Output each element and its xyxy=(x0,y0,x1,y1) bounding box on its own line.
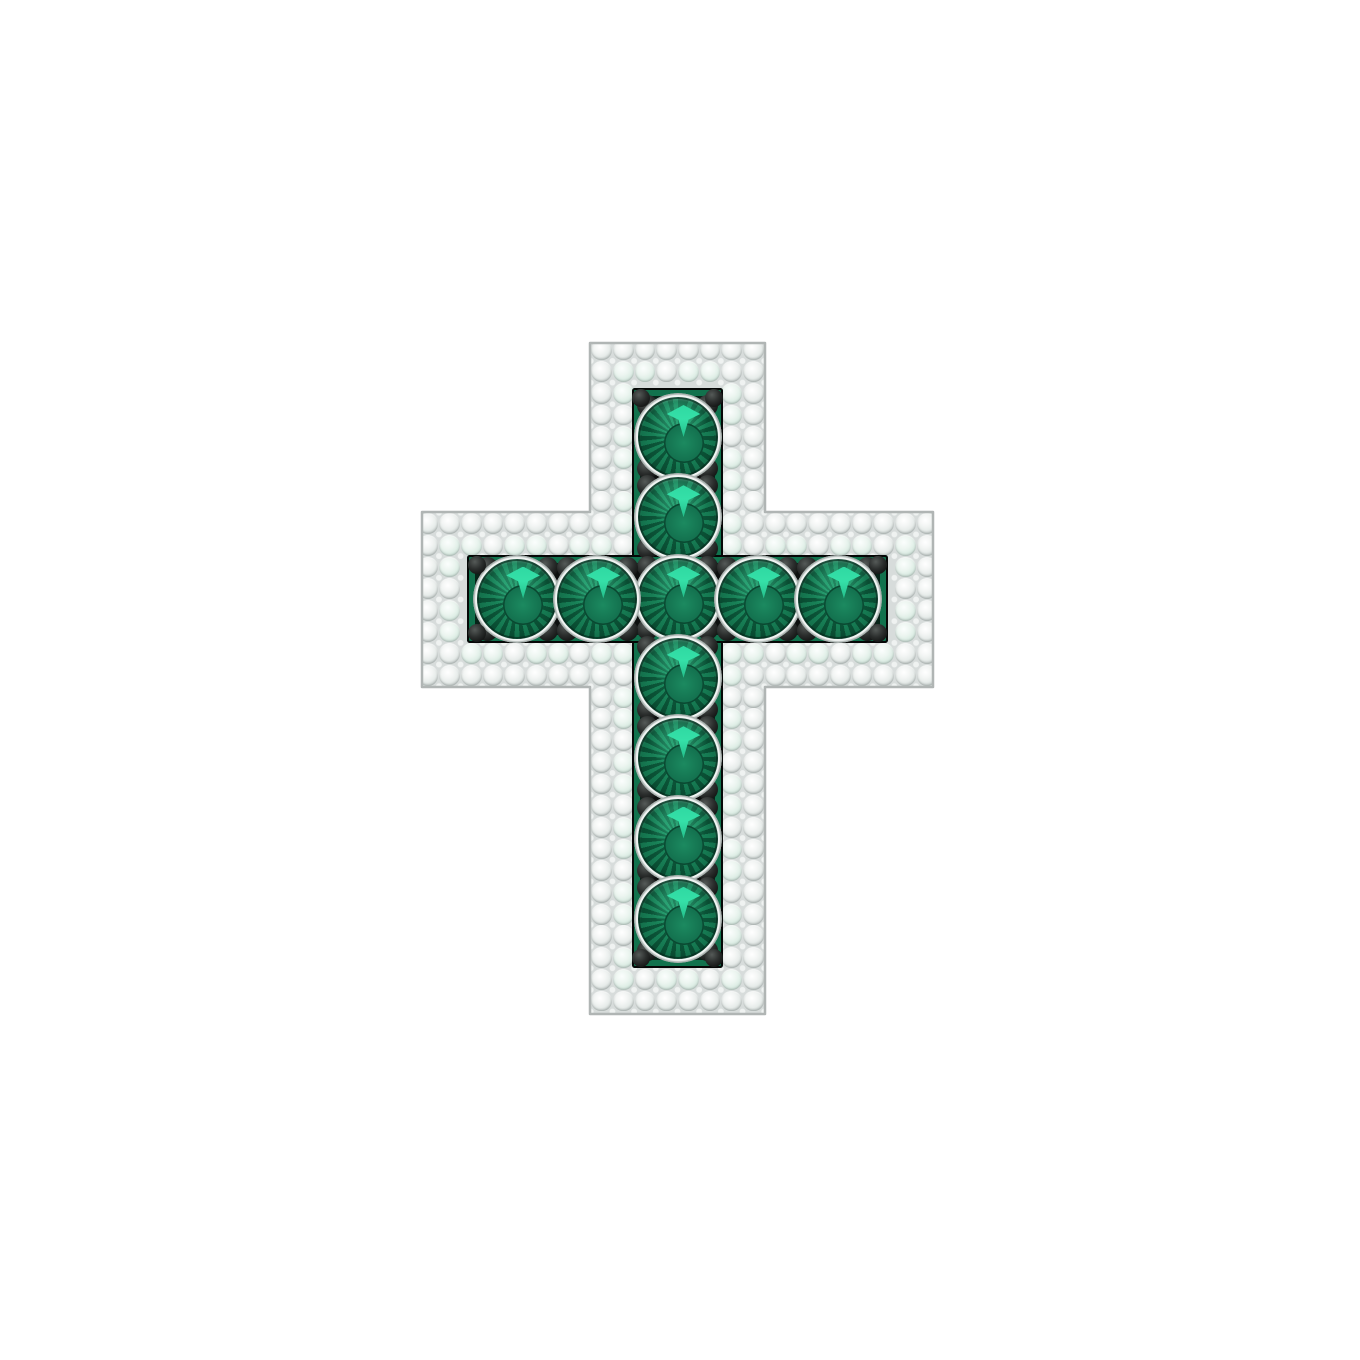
pave-diamond xyxy=(852,665,873,686)
pave-diamond xyxy=(743,643,764,664)
pave-diamond xyxy=(439,578,460,599)
pave-diamond xyxy=(591,426,612,447)
pave-diamond xyxy=(743,904,764,925)
pave-diamond xyxy=(591,405,612,426)
pave-diamond xyxy=(591,513,612,534)
product-image xyxy=(0,0,1360,1360)
pave-diamond xyxy=(483,665,504,686)
pave-diamond xyxy=(765,643,786,664)
pave-diamond xyxy=(418,513,439,534)
pave-diamond xyxy=(895,622,916,643)
pave-diamond xyxy=(591,470,612,491)
emerald-stone xyxy=(712,553,804,645)
emerald-gem xyxy=(638,558,718,638)
pave-diamond xyxy=(895,557,916,578)
pave-diamond xyxy=(591,795,612,816)
pave-diamond xyxy=(504,665,525,686)
pave-diamond xyxy=(461,643,482,664)
pave-diamond xyxy=(656,361,677,382)
emerald-gem xyxy=(638,718,718,798)
pave-diamond xyxy=(743,817,764,838)
pave-diamond xyxy=(743,730,764,751)
pave-diamond xyxy=(917,600,938,621)
emerald-gem xyxy=(638,799,718,879)
pave-diamond xyxy=(700,969,721,990)
pave-diamond xyxy=(743,882,764,903)
pave-diamond xyxy=(591,947,612,968)
pave-diamond xyxy=(765,665,786,686)
pave-diamond xyxy=(591,882,612,903)
pave-diamond xyxy=(765,513,786,534)
pave-diamond xyxy=(591,969,612,990)
emerald-gem xyxy=(477,559,557,639)
pave-diamond xyxy=(743,860,764,881)
pave-diamond xyxy=(743,925,764,946)
emerald-gem xyxy=(557,559,637,639)
pave-diamond xyxy=(743,665,764,686)
emerald-stone xyxy=(632,552,724,644)
pave-diamond xyxy=(526,665,547,686)
pave-diamond xyxy=(418,535,439,556)
pave-diamond xyxy=(721,752,742,773)
pave-diamond xyxy=(721,448,742,469)
pave-diamond xyxy=(721,882,742,903)
pave-diamond xyxy=(743,426,764,447)
pave-diamond xyxy=(439,665,460,686)
emerald-gem xyxy=(638,638,718,718)
pave-diamond xyxy=(808,513,829,534)
pave-diamond xyxy=(504,513,525,534)
pave-diamond xyxy=(526,643,547,664)
emerald-stone xyxy=(632,712,724,804)
pave-diamond xyxy=(721,383,742,404)
pave-diamond xyxy=(439,600,460,621)
pave-diamond xyxy=(526,513,547,534)
emerald-gem xyxy=(798,559,878,639)
pave-diamond xyxy=(743,491,764,512)
pave-diamond xyxy=(591,340,612,361)
channel-end-prong xyxy=(705,389,723,407)
pave-diamond xyxy=(548,643,569,664)
pave-diamond xyxy=(721,687,742,708)
channel-end-prong xyxy=(468,624,486,642)
pave-diamond xyxy=(591,860,612,881)
pave-diamond xyxy=(461,665,482,686)
pave-diamond xyxy=(721,513,742,534)
channel-end-prong xyxy=(632,949,650,967)
pave-diamond xyxy=(678,361,699,382)
pave-diamond xyxy=(873,513,894,534)
pave-diamond xyxy=(591,730,612,751)
emerald-stone xyxy=(551,553,643,645)
pave-diamond xyxy=(895,513,916,534)
pave-diamond xyxy=(591,361,612,382)
pave-diamond xyxy=(613,340,634,361)
pave-diamond xyxy=(917,622,938,643)
pave-diamond xyxy=(917,513,938,534)
pave-diamond xyxy=(743,383,764,404)
pave-diamond xyxy=(743,687,764,708)
pave-diamond xyxy=(591,774,612,795)
pave-diamond xyxy=(743,513,764,534)
pave-diamond xyxy=(917,578,938,599)
pave-diamond xyxy=(721,817,742,838)
pave-diamond xyxy=(743,708,764,729)
pave-diamond xyxy=(721,730,742,751)
channel-end-prong xyxy=(468,556,486,574)
pave-diamond xyxy=(917,665,938,686)
pave-diamond xyxy=(743,340,764,361)
pave-diamond xyxy=(743,405,764,426)
pave-diamond xyxy=(418,600,439,621)
pave-diamond xyxy=(917,643,938,664)
pave-diamond xyxy=(743,470,764,491)
pave-diamond xyxy=(743,969,764,990)
pave-diamond xyxy=(808,643,829,664)
pave-diamond xyxy=(656,969,677,990)
pave-diamond xyxy=(743,839,764,860)
emerald-gem xyxy=(718,559,798,639)
pave-diamond xyxy=(743,752,764,773)
pave-diamond xyxy=(418,665,439,686)
pave-diamond xyxy=(743,947,764,968)
pave-diamond xyxy=(569,665,590,686)
pave-diamond xyxy=(439,535,460,556)
pave-diamond xyxy=(591,665,612,686)
pave-diamond xyxy=(852,513,873,534)
pave-diamond xyxy=(786,665,807,686)
channel-end-prong xyxy=(632,389,650,407)
pave-diamond xyxy=(591,991,612,1012)
pave-diamond xyxy=(721,904,742,925)
pave-diamond xyxy=(548,513,569,534)
pave-diamond xyxy=(635,969,656,990)
pave-diamond xyxy=(895,578,916,599)
channel-end-prong xyxy=(869,624,887,642)
channel-end-prong xyxy=(705,949,723,967)
pave-diamond xyxy=(591,687,612,708)
pave-diamond xyxy=(895,600,916,621)
pave-diamond xyxy=(873,665,894,686)
pave-diamond xyxy=(743,991,764,1012)
pave-diamond xyxy=(917,557,938,578)
pave-diamond xyxy=(895,665,916,686)
pave-diamond xyxy=(591,839,612,860)
pave-diamond xyxy=(808,665,829,686)
pave-diamond xyxy=(591,904,612,925)
pave-diamond xyxy=(895,643,916,664)
pave-diamond xyxy=(591,448,612,469)
pave-diamond xyxy=(830,665,851,686)
emerald-stone xyxy=(632,793,724,885)
pave-diamond xyxy=(678,991,699,1012)
pave-diamond xyxy=(678,969,699,990)
pave-diamond xyxy=(743,361,764,382)
pave-diamond xyxy=(917,535,938,556)
emerald-gem xyxy=(638,397,718,477)
pave-diamond xyxy=(591,817,612,838)
pave-diamond xyxy=(483,513,504,534)
pave-diamond xyxy=(461,513,482,534)
pave-diamond xyxy=(613,991,634,1012)
pave-diamond xyxy=(743,795,764,816)
emerald-gem xyxy=(638,879,718,959)
pave-diamond xyxy=(591,383,612,404)
pave-diamond xyxy=(548,665,569,686)
pave-diamond xyxy=(830,643,851,664)
pave-diamond xyxy=(721,969,742,990)
pave-diamond xyxy=(613,361,634,382)
pave-diamond xyxy=(721,665,742,686)
pave-diamond xyxy=(721,470,742,491)
pave-diamond xyxy=(591,643,612,664)
pave-diamond xyxy=(895,535,916,556)
pave-diamond xyxy=(591,752,612,773)
emerald-stone xyxy=(632,471,724,563)
pave-diamond xyxy=(678,340,699,361)
pave-diamond xyxy=(613,969,634,990)
emerald-gem xyxy=(638,477,718,557)
channel-end-prong xyxy=(869,556,887,574)
pave-diamond xyxy=(830,513,851,534)
pave-diamond xyxy=(721,947,742,968)
pave-diamond xyxy=(743,448,764,469)
pave-diamond xyxy=(439,513,460,534)
emerald-stone xyxy=(632,632,724,724)
pave-diamond xyxy=(743,774,764,795)
